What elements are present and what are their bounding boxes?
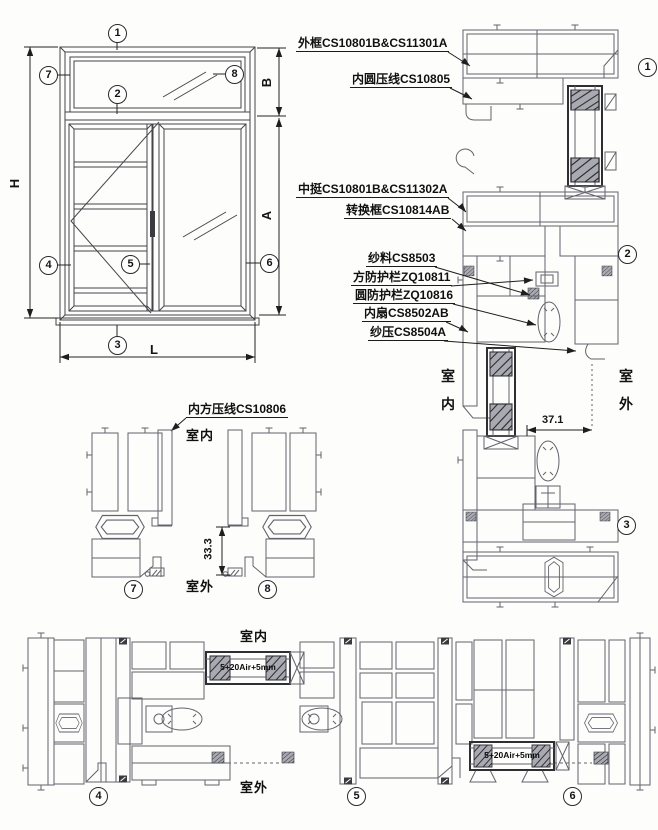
label-mullion: 中挺CS10801B&CS11302A — [296, 183, 449, 198]
indoor-marker-bottom: 室内 — [240, 626, 268, 645]
label-screen-bead: 纱压CS8504A — [368, 326, 448, 341]
glass-spec-a: 5+20Air+5mm — [206, 662, 290, 672]
section-8-profile — [223, 428, 321, 577]
glass-mark-sash — [183, 212, 237, 240]
callout-3-elevation: 3 — [108, 336, 127, 355]
screen-louvers — [74, 162, 147, 293]
callout-4-section: 4 — [89, 787, 108, 806]
label-inner-sash: 内扇CS8502AB — [362, 307, 451, 322]
vertical-section — [456, 25, 618, 607]
indoor-char-2: 内 — [441, 394, 455, 414]
assembly-drawing: 外框CS10801B&CS11301A 内圆压线CS10805 中挺CS1080… — [0, 0, 658, 830]
callout-7-section: 7 — [124, 580, 143, 599]
sash-handle — [150, 211, 155, 237]
outdoor-char-2: 外 — [619, 394, 633, 414]
left-jamb-profile — [23, 633, 130, 790]
dim-offset-33: 33.3 — [203, 538, 215, 559]
opening-direction-mark — [71, 122, 159, 313]
meeting-stile-profile — [300, 638, 472, 785]
indoor-marker-corner: 室内 — [186, 425, 214, 444]
outdoor-marker-corner: 室外 — [186, 576, 214, 595]
dim-upper-b: B — [259, 78, 274, 87]
label-round-guard-rail: 圆防护栏ZQ10816 — [353, 289, 455, 304]
section-7-profile — [87, 428, 172, 577]
dim-offset-37: 37.1 — [542, 414, 563, 426]
label-adapter-frame: 转换框CS10814AB — [344, 204, 451, 219]
label-outer-frame: 外框CS10801B&CS11301A — [296, 37, 449, 52]
window-elevation — [56, 47, 259, 325]
outdoor-marker-vertical: 室 外 — [619, 366, 633, 414]
glass-mark-fixed — [163, 72, 217, 100]
callout-7-elevation: 7 — [39, 66, 58, 85]
callout-5-elevation: 5 — [121, 255, 140, 274]
round-bead-hook — [466, 104, 491, 120]
label-inner-square-bead: 内方压线CS10806 — [186, 403, 288, 418]
callout-6-elevation: 6 — [260, 254, 279, 273]
round-guard-tube — [538, 302, 560, 342]
callout-8-section: 8 — [258, 580, 277, 599]
label-square-guard-rail: 方防护栏ZQ10811 — [351, 271, 452, 286]
square-guard-tube — [536, 272, 558, 286]
label-screen-mesh: 纱料CS8503 — [366, 252, 437, 267]
dim-width-l: L — [150, 342, 158, 357]
horizontal-section — [23, 633, 655, 790]
callout-2-section: 2 — [618, 245, 637, 264]
callout-3-section: 3 — [617, 516, 636, 535]
outdoor-marker-bottom: 室外 — [240, 777, 268, 796]
indoor-marker-vertical: 室 内 — [441, 366, 455, 414]
outdoor-char-1: 室 — [619, 366, 633, 386]
dim-height-h: H — [7, 179, 22, 188]
indoor-char-1: 室 — [441, 366, 455, 386]
callout-1-elevation: 1 — [108, 24, 127, 43]
callout-5-section: 5 — [347, 787, 366, 806]
callout-2-elevation: 2 — [108, 85, 127, 104]
callout-1-section: 1 — [638, 58, 657, 77]
glass-spec-b: 5+20Air+5mm — [470, 750, 554, 760]
right-jamb-profile — [470, 633, 655, 790]
fixed-glass-unit — [565, 86, 616, 199]
label-inner-round-bead: 内圆压线CS10805 — [350, 73, 452, 88]
callout-4-elevation: 4 — [39, 256, 58, 275]
callout-8-elevation: 8 — [225, 65, 244, 84]
callout-6-section: 6 — [563, 787, 582, 806]
guard-rail-parts — [464, 266, 612, 342]
sill-profile — [463, 430, 618, 607]
sash-glass-unit — [484, 348, 518, 449]
dim-lower-a: A — [259, 211, 274, 220]
section-leaders — [169, 52, 592, 436]
